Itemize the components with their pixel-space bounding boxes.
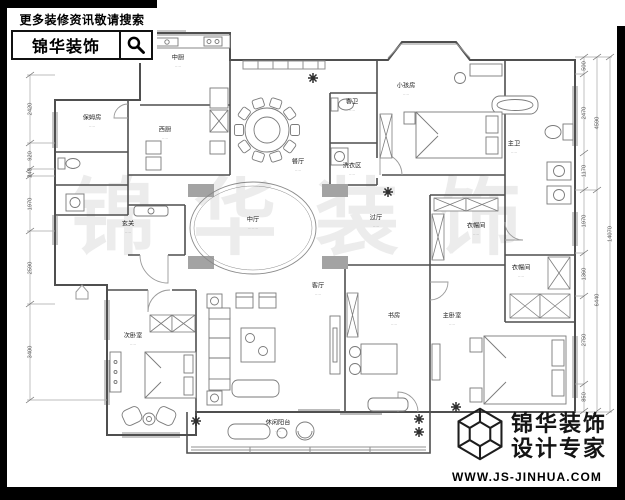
north-house-icon	[76, 285, 88, 299]
brand-name: 锦华装饰	[13, 32, 119, 58]
right-black-bar	[617, 26, 625, 500]
footer-brand-line1: 锦华装饰	[511, 412, 607, 437]
living-room-furniture	[207, 293, 340, 405]
bed-master	[432, 336, 566, 404]
footer-brand-line2: 设计专家	[511, 437, 607, 462]
bed-second	[110, 352, 196, 398]
guest-bath-fixtures	[331, 98, 354, 165]
bottom-black-bar	[0, 487, 625, 500]
study-furniture	[350, 344, 409, 411]
bed-kids	[404, 64, 502, 158]
search-hint-text: 更多装修资讯敬请搜索	[7, 8, 157, 30]
search-icon	[119, 32, 151, 58]
floor-plan-page: 锦华装饰	[0, 0, 625, 500]
master-bath-fixtures	[492, 96, 573, 204]
footer-logo: 锦华装饰 设计专家 WWW.JS-JINHUA.COM	[452, 406, 618, 484]
left-black-bar	[0, 0, 7, 500]
top-black-bar	[0, 0, 157, 8]
brand-search-box: 锦华装饰	[11, 30, 153, 60]
columns	[188, 184, 348, 269]
cube-logo-icon	[452, 406, 508, 467]
dining-table	[235, 97, 300, 162]
footer-website: WWW.JS-JINHUA.COM	[452, 470, 618, 484]
header-logo: 更多装修资讯敬请搜索 锦华装饰	[7, 8, 157, 63]
